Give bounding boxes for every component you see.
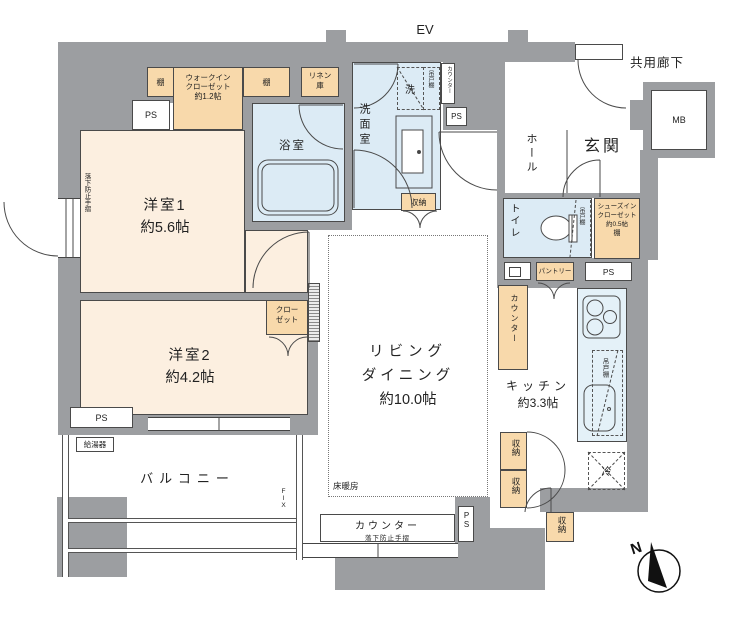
western1-name: 洋室1 [90, 194, 240, 215]
entrance-door-arc [578, 60, 626, 108]
handrail-left-label: 落下防止手摺 [81, 173, 91, 212]
washroom-door-top-arc [354, 64, 398, 108]
bath-label: 浴室 [255, 137, 330, 153]
floor-plan: 棚 ウォークイン クローゼット 約1.2帖 棚 リネン 庫 収納 シューズイン … [0, 0, 750, 620]
entrance-hall-door-arc [563, 160, 600, 197]
western2-size: 約4.2帖 [110, 366, 270, 387]
western1-exterior-door-arc [4, 202, 58, 256]
washroom-label: 洗面室 [356, 103, 372, 148]
hanging-cupboard-kitchen-label: 吊戸棚 [599, 358, 609, 378]
hall-label: ホール [523, 133, 539, 175]
elevator-label: EV [405, 22, 445, 37]
common-corridor-label: 共用廊下 [630, 52, 684, 71]
compass-n-label: N [628, 539, 644, 559]
western1-size: 約5.6帖 [90, 216, 240, 237]
floor-heating-label: 床暖房 [333, 480, 359, 492]
hanging-cupboard-washroom-label: 吊戸棚 [426, 70, 435, 88]
corridor-storage-doors [403, 211, 437, 228]
compass: N [628, 539, 680, 592]
plan-linework: N [0, 0, 750, 620]
closet-doors-arc [269, 337, 307, 356]
toilet-label: トイレ [506, 203, 521, 239]
kitchen-storage-doors-arc [527, 432, 565, 508]
toilet-bowl [541, 216, 571, 240]
kitchen-name: キッチン [498, 377, 578, 394]
entrance-label: 玄関 [570, 132, 636, 156]
compass-needle [648, 542, 667, 588]
vanity-knob [418, 151, 421, 154]
fridge-label: 冷 [588, 463, 625, 478]
bathtub-inner [262, 164, 334, 211]
fix-label: FIX [280, 488, 287, 509]
kitchen-size: 約3.3帖 [498, 394, 578, 411]
living-line2: ダイニング [328, 364, 488, 385]
stove-burner-1 [587, 300, 603, 316]
pantry-doors-arc [538, 283, 570, 299]
balcony-label: バルコニー [105, 468, 270, 487]
washer-label: 洗 [405, 81, 415, 96]
living-size: 約10.0帖 [328, 388, 488, 409]
stove-burner-2 [604, 311, 617, 324]
western2-name: 洋室2 [110, 344, 270, 365]
hall-door-arc [439, 132, 497, 190]
stove-burner-3 [587, 319, 603, 335]
living-line1: リビング [328, 340, 488, 361]
kitchen-cupboard-dot [608, 408, 611, 411]
hanging-cupboard-toilet-label: 吊戸棚 [577, 207, 586, 225]
bathtub [258, 160, 338, 215]
western1-door-arc [253, 232, 309, 288]
toilet-tank [569, 215, 577, 242]
